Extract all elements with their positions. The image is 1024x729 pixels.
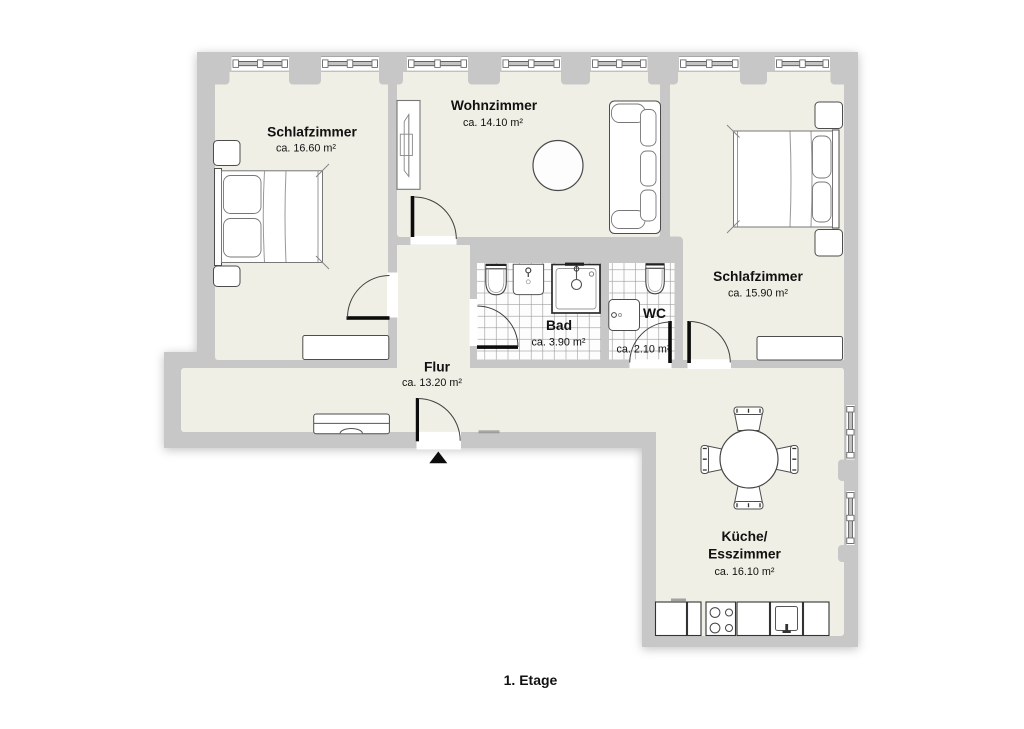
- svg-text:Bad: Bad: [546, 318, 572, 333]
- svg-text:ca. 14.10 m²: ca. 14.10 m²: [463, 117, 523, 129]
- svg-text:Wohnzimmer: Wohnzimmer: [451, 98, 538, 113]
- svg-text:ca. 16.60 m²: ca. 16.60 m²: [276, 143, 336, 155]
- svg-text:Schlafzimmer: Schlafzimmer: [267, 125, 357, 140]
- svg-text:ca. 13.20 m²: ca. 13.20 m²: [402, 377, 462, 389]
- svg-text:Esszimmer: Esszimmer: [708, 547, 781, 562]
- svg-text:Flur: Flur: [424, 360, 451, 375]
- svg-text:ca. 2.10 m²: ca. 2.10 m²: [616, 344, 670, 356]
- svg-text:ca. 15.90 m²: ca. 15.90 m²: [728, 288, 788, 300]
- svg-text:WC: WC: [643, 306, 666, 321]
- svg-text:ca. 3.90 m²: ca. 3.90 m²: [531, 337, 585, 349]
- svg-text:Küche/: Küche/: [722, 529, 768, 544]
- svg-text:Schlafzimmer: Schlafzimmer: [713, 269, 803, 284]
- svg-text:ca. 16.10 m²: ca. 16.10 m²: [714, 566, 774, 578]
- svg-text:1. Etage: 1. Etage: [504, 672, 558, 688]
